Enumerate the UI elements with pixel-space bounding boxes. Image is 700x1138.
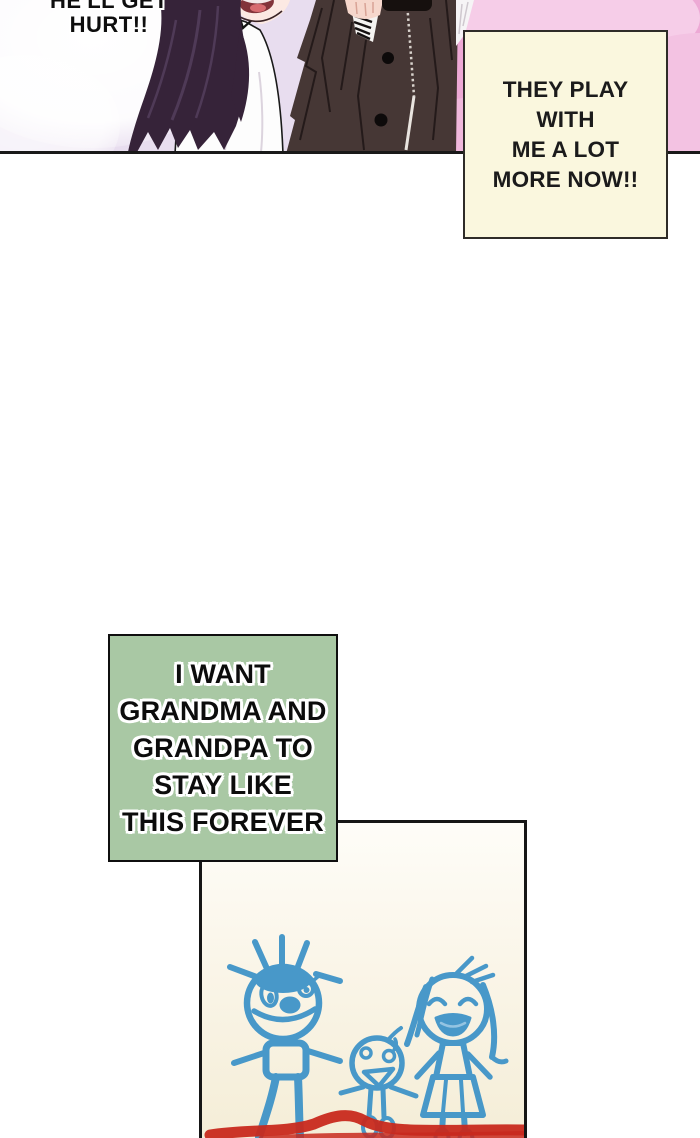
comic-panel-drawing <box>199 820 527 1138</box>
child-crayon-drawing <box>202 823 524 1138</box>
grandpa-character <box>286 0 474 154</box>
shout-line-2: HURT!! <box>46 13 172 37</box>
red-crayon-ground <box>210 1116 524 1138</box>
green-caption-line-3: GRANDPA TO <box>133 730 313 767</box>
grandma-torso <box>436 1043 470 1077</box>
speech-box-green: I WANT GRANDMA AND GRANDPA TO STAY LIKE … <box>108 634 338 862</box>
yellow-caption-line-2: WITH <box>536 105 594 135</box>
grandma-closed-eye <box>429 999 445 1004</box>
shout-bubble-text: HE'LL GET HURT!! <box>46 0 172 37</box>
green-caption-line-2: GRANDMA AND <box>119 693 326 730</box>
coat-button <box>375 114 388 127</box>
grandma-skirt <box>423 1077 483 1115</box>
yellow-caption-line-4: MORE NOW!! <box>493 165 639 195</box>
webtoon-page: HE'LL GET HURT!! THEY PLAY WITH ME A LOT… <box>0 0 700 1138</box>
coat-button <box>382 52 394 64</box>
grandpa-body <box>266 1043 306 1077</box>
grandma-closed-eye <box>460 999 476 1004</box>
grandma-mouth <box>436 1015 470 1036</box>
held-object <box>382 0 432 11</box>
grandpa-nose <box>280 997 301 1014</box>
yellow-caption-line-3: ME A LOT <box>512 135 619 165</box>
drawing-grandpa-figure <box>230 937 340 1137</box>
yellow-caption-line-1: THEY PLAY <box>503 75 629 105</box>
green-caption-line-5: THIS FOREVER <box>122 804 324 841</box>
speech-box-yellow: THEY PLAY WITH ME A LOT MORE NOW!! <box>463 30 668 239</box>
green-caption-line-4: STAY LIKE <box>154 767 292 804</box>
drawing-grandma-figure <box>407 958 506 1138</box>
green-caption-line-1: I WANT <box>175 656 271 693</box>
